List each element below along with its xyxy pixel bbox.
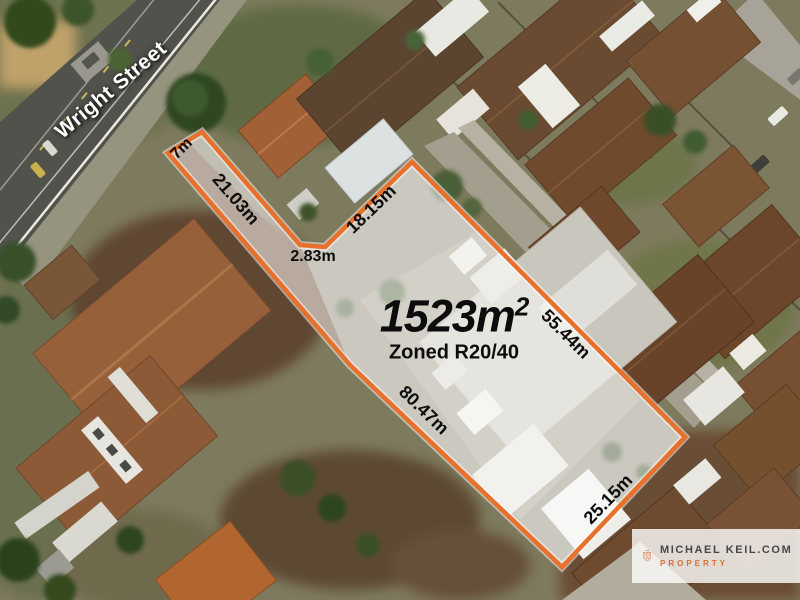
parcel-area-block: 1523m2 Zoned R20/40	[380, 294, 529, 365]
parcel-area-value: 1523m2	[380, 294, 529, 339]
brand-tagline: PROPERTY	[660, 559, 800, 568]
measurement-notch: 2.83m	[290, 249, 335, 265]
brand-watermark: MICHAEL KEIL.COM PROPERTY	[632, 529, 800, 583]
shield-crest-icon	[642, 536, 652, 576]
parcel-zoning-label: Zoned R20/40	[380, 342, 529, 365]
aerial-photo: Wright Street 7m 21.03m 2.83m 18.15m 55.…	[0, 0, 800, 600]
brand-name: MICHAEL KEIL.COM	[660, 544, 800, 556]
